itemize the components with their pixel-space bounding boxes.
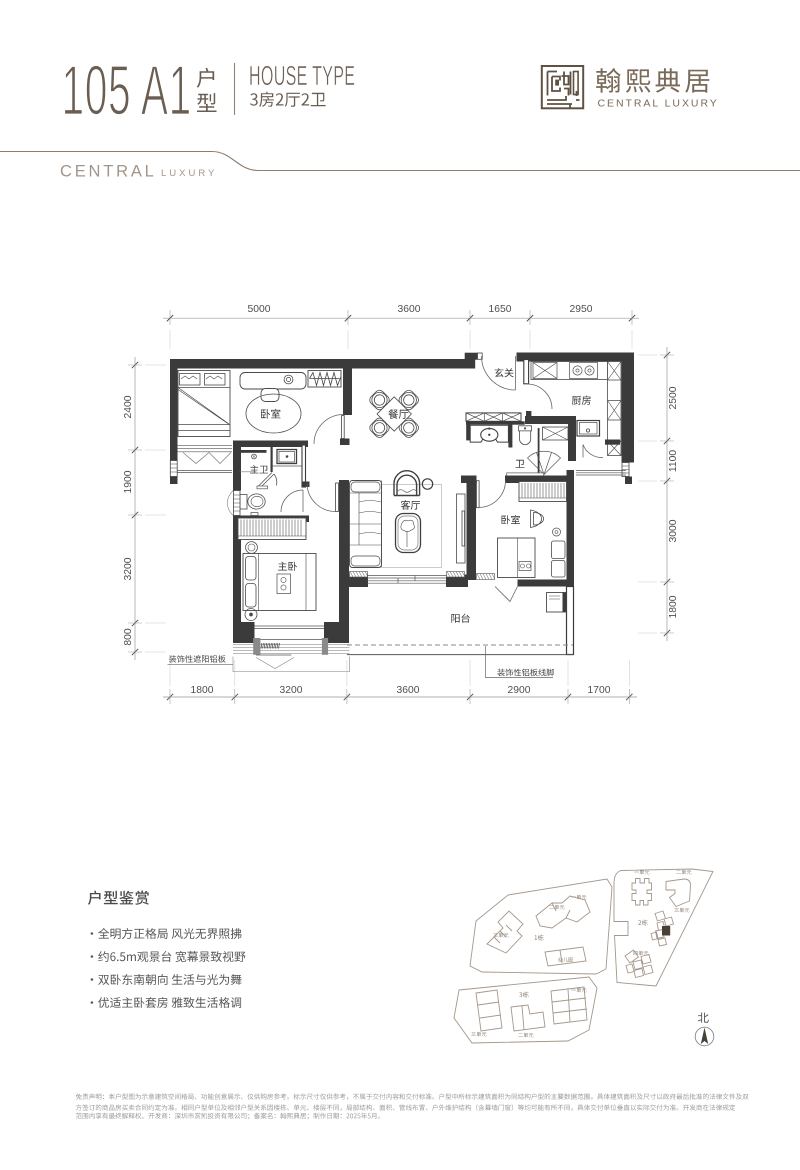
svg-text:1900: 1900 — [123, 470, 134, 493]
svg-text:105 A1: 105 A1 — [62, 52, 192, 130]
svg-text:1650: 1650 — [489, 304, 512, 315]
svg-text:1700: 1700 — [588, 685, 611, 696]
svg-text:3200: 3200 — [280, 685, 303, 696]
svg-text:3000: 3000 — [668, 519, 679, 542]
svg-text:2500: 2500 — [668, 386, 679, 409]
svg-text:3600: 3600 — [398, 304, 421, 315]
svg-text:LUXURY: LUXURY — [161, 168, 217, 179]
svg-text:5000: 5000 — [248, 304, 271, 315]
svg-text:2900: 2900 — [508, 685, 531, 696]
svg-text:CENTRAL: CENTRAL — [60, 163, 157, 181]
svg-text:2950: 2950 — [570, 304, 593, 315]
svg-text:3200: 3200 — [123, 557, 134, 580]
svg-text:1800: 1800 — [668, 595, 679, 618]
svg-text:HOUSE TYPE: HOUSE TYPE — [249, 59, 355, 91]
svg-text:3600: 3600 — [397, 685, 420, 696]
svg-text:CENTRAL LUXURY: CENTRAL LUXURY — [598, 98, 719, 110]
svg-text:800: 800 — [123, 628, 134, 645]
svg-text:2400: 2400 — [123, 395, 134, 418]
svg-text:1800: 1800 — [191, 685, 214, 696]
svg-text:1100: 1100 — [668, 450, 679, 472]
